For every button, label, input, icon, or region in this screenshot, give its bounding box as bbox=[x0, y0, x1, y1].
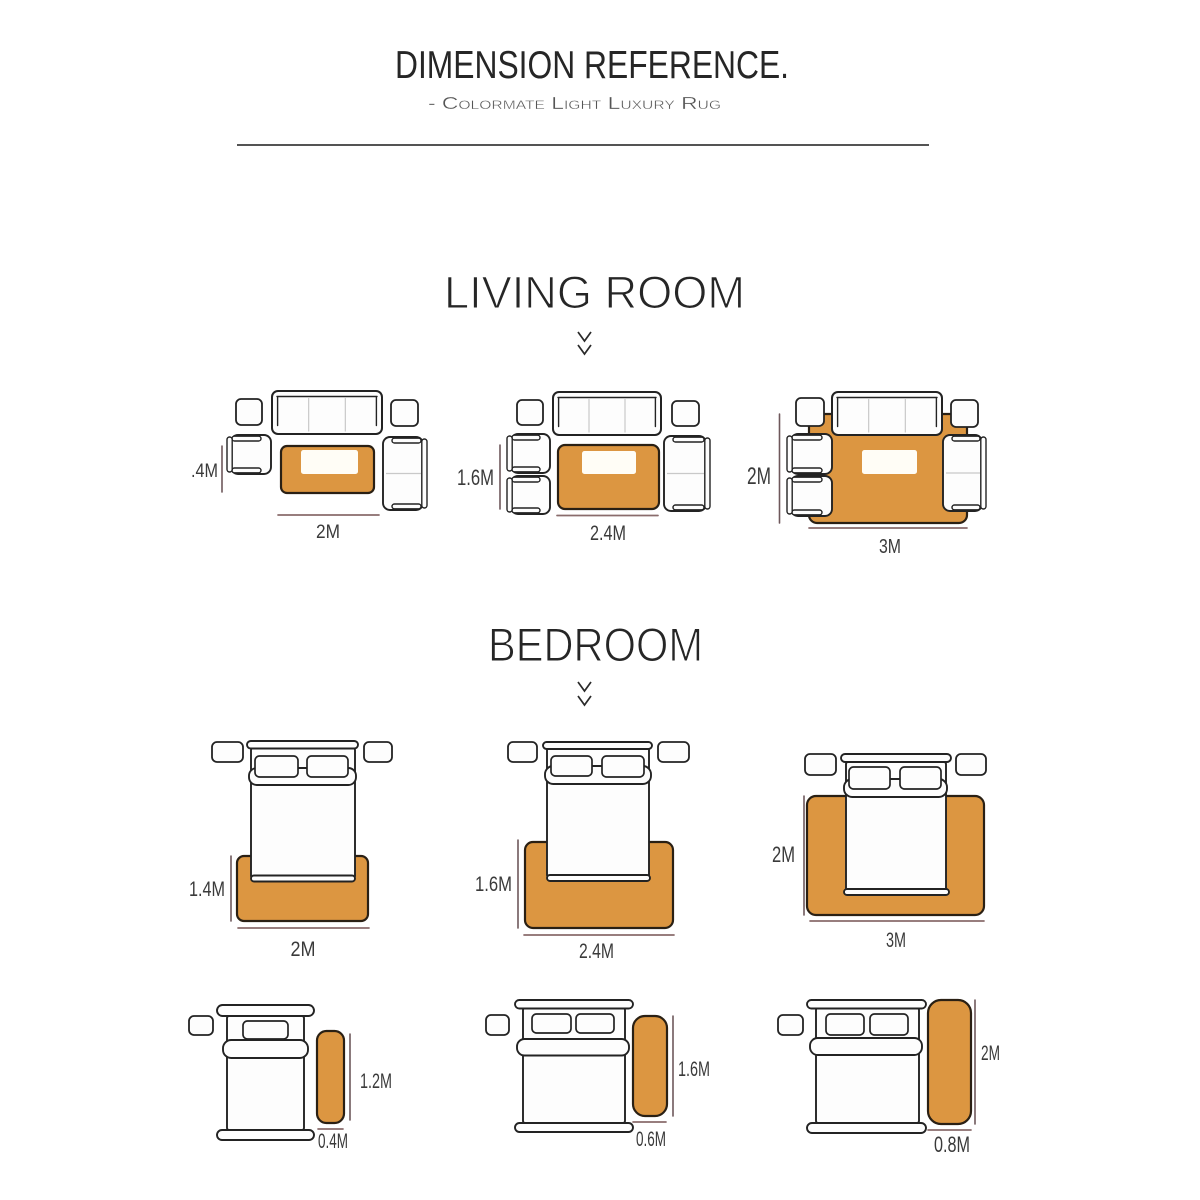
svg-text:1.6M: 1.6M bbox=[678, 1058, 710, 1081]
svg-text:BEDROOM: BEDROOM bbox=[488, 618, 703, 671]
svg-text:1.4M: 1.4M bbox=[189, 878, 225, 901]
svg-text:1.6M: 1.6M bbox=[475, 873, 512, 896]
svg-text:LIVING ROOM: LIVING ROOM bbox=[444, 267, 745, 318]
svg-text:3M: 3M bbox=[879, 536, 901, 558]
svg-text:2M: 2M bbox=[747, 463, 771, 490]
svg-text:2M: 2M bbox=[291, 938, 316, 961]
svg-text:2.4M: 2.4M bbox=[590, 522, 626, 545]
svg-text:2.4M: 2.4M bbox=[579, 940, 614, 963]
svg-text:2M: 2M bbox=[772, 842, 795, 867]
svg-text:0.6M: 0.6M bbox=[636, 1128, 666, 1151]
svg-text:- Colormate Light Luxury Rug: - Colormate Light Luxury Rug bbox=[428, 93, 721, 113]
svg-text:2M: 2M bbox=[316, 522, 340, 543]
svg-text:1.2M: 1.2M bbox=[360, 1070, 392, 1093]
svg-text:0.8M: 0.8M bbox=[934, 1132, 970, 1157]
svg-text:1.6M: 1.6M bbox=[457, 465, 494, 490]
svg-text:.4M: .4M bbox=[191, 461, 218, 482]
svg-text:0.4M: 0.4M bbox=[318, 1130, 348, 1153]
svg-text:DIMENSION REFERENCE.: DIMENSION REFERENCE. bbox=[395, 44, 789, 87]
svg-text:3M: 3M bbox=[886, 929, 906, 952]
svg-text:2M: 2M bbox=[981, 1042, 1000, 1065]
